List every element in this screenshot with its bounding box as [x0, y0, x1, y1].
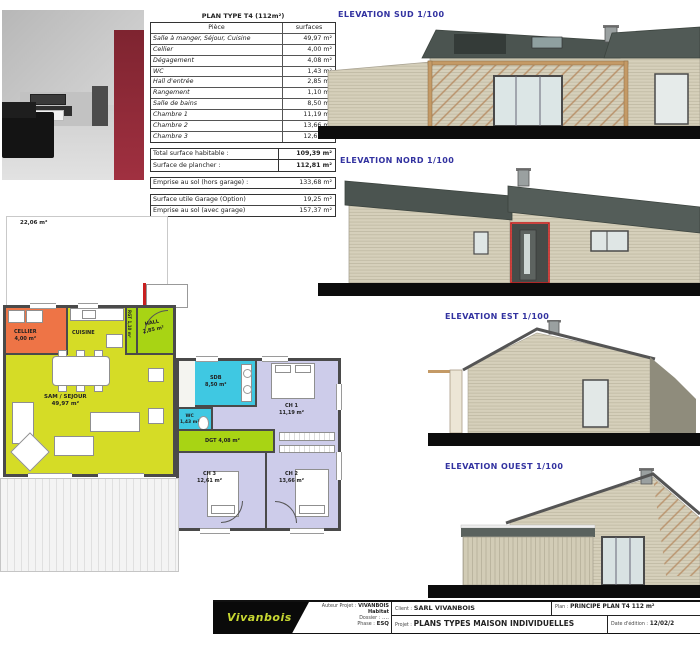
elevation-nord-drawing — [318, 168, 700, 296]
est-pergola-post — [450, 370, 462, 433]
chair — [76, 385, 85, 392]
table-row: Salle de bains8,50 m² — [151, 98, 335, 109]
closet — [279, 432, 335, 441]
sud-pergola-beam — [428, 61, 628, 65]
totals-table: Total surface habitable :109,39 m² Surfa… — [150, 148, 336, 173]
door-arc-ch2 — [275, 501, 297, 523]
table-row: Salle à manger, Séjour, Cuisine49,97 m² — [151, 33, 335, 44]
ouest-garage-wall — [463, 537, 593, 585]
room-ch3: CH 312,61 m² — [179, 453, 265, 528]
ouest-glazed-door — [602, 537, 644, 585]
plan-night-block: SDB8,50 m² WC1,43 m² CH 111,19 m² DGT 4,… — [176, 358, 341, 531]
red-post — [143, 283, 146, 306]
surface-table: PLAN TYPE T4 (112m²) Pièce surfaces Sall… — [150, 12, 336, 217]
pillow — [295, 365, 311, 373]
rooms-table: Pièce surfaces Salle à manger, Séjour, C… — [150, 22, 336, 142]
sink — [243, 385, 252, 394]
sud-ground — [318, 126, 700, 139]
room-label-ch1: CH 111,19 m² — [279, 403, 304, 416]
elevation-title-nord: ELEVATION NORD 1/100 — [340, 156, 454, 165]
row-label: Salle à manger, Séjour, Cuisine — [151, 34, 282, 44]
drawing-sheet: PLAN TYPE T4 (112m²) Pièce surfaces Sall… — [0, 0, 700, 645]
emprise-row: Emprise au sol (hors garage) :133,68 m² — [151, 178, 335, 188]
nord-small-window — [474, 232, 488, 254]
date-cell: Date d'édition : 12/02/2 — [608, 616, 700, 634]
garage-row: Emprise au sol (avec garage)157,37 m² — [151, 205, 335, 216]
client-cell: Client : SARL VIVANBOIS — [392, 602, 552, 616]
kitchen-hob — [106, 334, 123, 348]
logo-text: Vivanbois — [227, 611, 292, 624]
title-block: Vivanbois Auteur Projet : VIVANBOIS Habi… — [213, 600, 700, 634]
chair — [58, 385, 67, 392]
client-value: SARL VIVANBOIS — [414, 604, 475, 612]
nord-chimney — [518, 170, 529, 186]
tv-unit — [148, 408, 164, 424]
row-label: Dégagement — [151, 56, 282, 66]
room-label-cuisine: CUISINE — [72, 330, 95, 337]
est-shaded-wing — [650, 357, 696, 433]
sud-roof-right — [604, 27, 700, 58]
client-label: Client : — [395, 607, 412, 612]
table-row: Cellier4,00 m² — [151, 44, 335, 55]
room-label-cellier: CELLIER4,00 m² — [14, 329, 37, 342]
row-label: Hall d'entrée — [151, 77, 282, 87]
sofa — [90, 412, 140, 432]
garage-label: Emprise au sol (avec garage) — [151, 206, 279, 216]
room-rgt: RGT 1,10 m² — [125, 308, 138, 355]
sud-roof-left — [422, 30, 620, 58]
night-entry — [179, 361, 195, 407]
room-ch2: CH 213,66 m² — [265, 453, 338, 528]
ouest-garage-fascia — [461, 528, 595, 537]
ouest-ground — [428, 585, 700, 598]
row-label: Salle de bains — [151, 99, 282, 109]
window — [30, 303, 56, 309]
row-label: Chambre 2 — [151, 121, 282, 131]
nord-ground — [318, 283, 700, 296]
table-row: WC1,43 m² — [151, 66, 335, 77]
chair — [76, 350, 85, 357]
est-window — [583, 380, 608, 427]
emprise-table: Emprise au sol (hors garage) :133,68 m² — [150, 177, 336, 189]
photo-red-wall — [114, 30, 144, 180]
nord-door-glass — [524, 234, 530, 274]
date-label: Date d'édition : — [611, 622, 648, 627]
room-cellier: CELLIER4,00 m² — [6, 308, 68, 355]
auteur-cell: Auteur Projet : VIVANBOIS Habitat Dossie… — [309, 602, 392, 634]
toilet — [198, 416, 209, 430]
kitchen-counter — [70, 308, 124, 321]
garage-label: Surface utile Garage (Option) — [151, 195, 279, 205]
logo-box: Vivanbois — [213, 602, 309, 634]
elevation-sud-drawing — [318, 25, 700, 139]
room-sdb: SDB8,50 m² — [195, 361, 257, 407]
room-ch1: CH 111,19 m² — [257, 361, 338, 429]
window — [290, 528, 324, 534]
row-label: WC — [151, 67, 282, 77]
photo-sofa-back — [2, 102, 36, 118]
window — [336, 452, 342, 480]
elevation-ouest-drawing — [428, 468, 700, 598]
room-label-sdb: SDB8,50 m² — [205, 375, 226, 388]
table-row: Chambre 213,66 m² — [151, 120, 335, 131]
total-row: Total surface habitable :109,39 m² — [151, 149, 335, 160]
interior-photo — [2, 10, 144, 180]
terrace-area-label: 22,06 m² — [20, 220, 47, 227]
photo-sofa — [2, 112, 54, 158]
chair — [94, 350, 103, 357]
terrace-deck — [0, 478, 179, 572]
date-value: 12/02/2 — [650, 621, 674, 627]
nord-window — [591, 231, 628, 251]
plan-day-block: CELLIER4,00 m² CUISINE RGT 1,10 m² HALL2… — [3, 305, 176, 477]
surface-table-title: PLAN TYPE T4 (112m²) — [150, 12, 336, 20]
window — [196, 356, 218, 362]
room-dgt: DGT 4,08 m² — [179, 429, 275, 453]
projet-label: Projet : — [395, 623, 412, 628]
room-label-ch3: CH 312,61 m² — [197, 471, 222, 484]
room-label-rgt: RGT 1,10 m² — [127, 310, 132, 338]
plan-value: PRINCIPE PLAN T4 112 m² — [570, 604, 654, 610]
projet-cell: Projet : PLANS TYPES MAISON INDIVIDUELLE… — [392, 616, 608, 634]
room-label-dgt: DGT 4,08 m² — [205, 438, 240, 445]
coffee-table — [54, 436, 94, 456]
row-label: Rangement — [151, 88, 282, 98]
table-row: Chambre 312,61 m² — [151, 131, 335, 142]
total-value: 109,39 m² — [278, 149, 335, 160]
sud-roof-vent — [454, 34, 506, 54]
table-row: Rangement1,10 m² — [151, 87, 335, 98]
appliance — [26, 310, 43, 323]
est-gable-wall — [468, 333, 650, 433]
table-header: Pièce surfaces — [151, 23, 335, 33]
row-label: Cellier — [151, 45, 282, 55]
elevation-est-drawing — [428, 320, 700, 446]
appliance — [8, 310, 25, 323]
phase-value: ESQ — [377, 621, 389, 627]
sud-left-wing — [328, 62, 430, 126]
auteur-label: Auteur Projet : — [322, 604, 357, 609]
window — [200, 528, 230, 534]
row-label: Chambre 1 — [151, 110, 282, 120]
sud-glazed-door — [494, 76, 562, 126]
total-label: Total surface habitable : — [151, 149, 278, 160]
garage-table: Surface utile Garage (Option)19,25 m² Em… — [150, 194, 336, 217]
pillow — [299, 505, 325, 514]
auteur-value: VIVANBOIS Habitat — [358, 603, 389, 615]
room-label-wc: WC1,43 m² — [180, 414, 199, 426]
total-label: Surface de plancher : — [151, 160, 278, 171]
emprise-label: Emprise au sol (hors garage) : — [151, 178, 279, 188]
window — [262, 356, 288, 362]
closet — [279, 445, 335, 453]
table-row: Chambre 111,19 m² — [151, 109, 335, 120]
door-arc-ch3 — [221, 501, 243, 523]
sud-pergola-post — [624, 61, 628, 126]
pillow — [275, 365, 291, 373]
room-label-sejour: SAM / SEJOUR49,97 m² — [44, 394, 87, 408]
chair — [58, 350, 67, 357]
header-piece: Pièce — [151, 23, 282, 33]
projet-value: PLANS TYPES MAISON INDIVIDUELLES — [414, 619, 574, 628]
kitchen-sink — [82, 310, 96, 319]
plan-label: Plan : — [555, 605, 568, 610]
plan-cell: Plan : PRINCIPE PLAN T4 112 m² — [552, 602, 700, 616]
window — [336, 384, 342, 410]
sud-pergola-post — [428, 61, 432, 126]
total-row: Surface de plancher :112,81 m² — [151, 159, 335, 171]
row-label: Chambre 3 — [151, 132, 282, 142]
table-row: Hall d'entrée2,85 m² — [151, 76, 335, 87]
ouest-garage-roofline — [461, 525, 595, 528]
elevation-title-sud: ELEVATION SUD 1/100 — [338, 10, 444, 19]
window — [78, 303, 98, 309]
room-hall: HALL2,85 m² — [138, 308, 173, 355]
chair — [94, 385, 103, 392]
side-table — [148, 368, 164, 382]
photo-doorway — [92, 86, 108, 126]
sud-window — [655, 74, 688, 124]
dining-table — [52, 356, 110, 386]
est-ground — [428, 433, 700, 446]
sink — [243, 369, 252, 378]
table-row: Dégagement4,08 m² — [151, 55, 335, 66]
room-label-ch2: CH 213,66 m² — [279, 471, 304, 484]
phase-label: Phase : — [357, 622, 374, 627]
sud-skylight — [532, 37, 562, 48]
garage-row: Surface utile Garage (Option)19,25 m² — [151, 195, 335, 205]
